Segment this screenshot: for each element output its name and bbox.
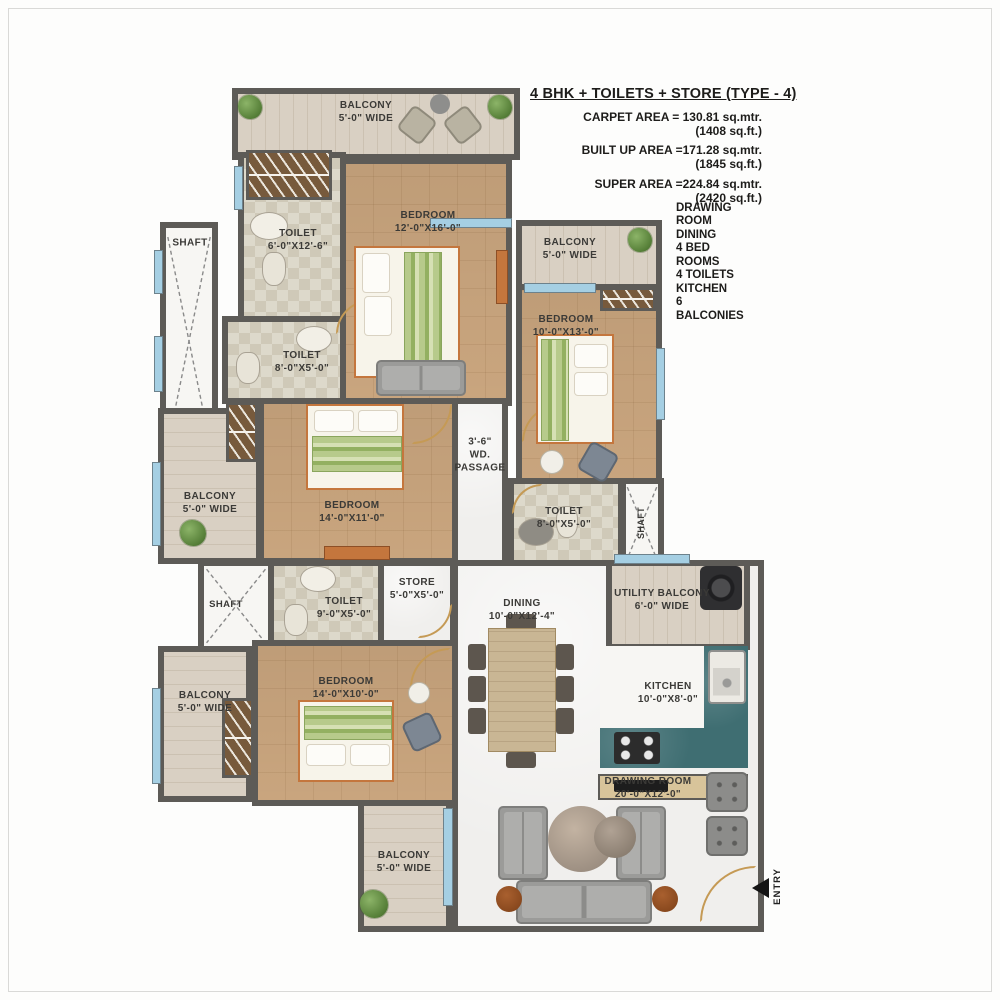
room-label-store: STORE 5'-0"X5'-0" <box>390 576 444 602</box>
room-label-balcony-right: BALCONY 5'-0" WIDE <box>543 236 597 262</box>
area-summary: CARPET AREA = 130.81 sq.mtr. (1408 sq.ft… <box>520 110 762 210</box>
dining-chair <box>506 752 536 768</box>
side-table <box>408 682 430 704</box>
feature-item: KITCHEN <box>676 283 744 296</box>
window <box>614 554 690 564</box>
bed <box>354 246 460 378</box>
feature-item: 4 BED ROOMS <box>676 242 744 269</box>
window <box>443 808 453 906</box>
feature-item: 4 TOILETS <box>676 269 744 282</box>
floor-plan-canvas: 4 BHK + TOILETS + STORE (TYPE - 4) CARPE… <box>0 0 1000 1000</box>
window <box>152 462 161 546</box>
entry-label: ENTRY <box>772 868 783 905</box>
washbasin-icon <box>300 566 336 592</box>
window <box>154 336 163 392</box>
sofa <box>376 360 466 396</box>
toilet-seat-icon <box>284 604 308 636</box>
plant-icon <box>628 228 652 252</box>
pillow <box>574 372 608 396</box>
plant-icon <box>238 95 262 119</box>
pouf <box>706 772 748 812</box>
pillow <box>574 344 608 368</box>
blanket <box>304 706 392 740</box>
window <box>524 283 596 293</box>
room-label-balcony-bottom-left: BALCONY 5'-0" WIDE <box>178 689 232 715</box>
room-label-bedroom-4: BEDROOM 14'-0"X10'-0" <box>313 675 379 701</box>
room-label-bedroom-3: BEDROOM 14'-0"X11'-0" <box>319 499 385 525</box>
dining-table <box>488 628 556 752</box>
feature-item: DINING <box>676 229 744 242</box>
dining-chair <box>556 708 574 734</box>
stove-icon <box>614 732 660 764</box>
room-label-bedroom-master: BEDROOM 12'-0"X16'-0" <box>395 209 461 235</box>
carpet-area: CARPET AREA = 130.81 sq.mtr. (1408 sq.ft… <box>520 110 762 138</box>
room-label-balcony-bottom: BALCONY 5'-0" WIDE <box>377 849 431 875</box>
feature-item: DRAWING ROOM <box>676 202 744 229</box>
blanket <box>404 252 442 374</box>
room-label-shaft-top-left: SHAFT <box>172 237 207 250</box>
bed <box>298 700 394 782</box>
sofa-cushion <box>504 812 542 874</box>
room-label-passage: 3'-6" WD. PASSAGE <box>455 436 506 475</box>
pouf <box>706 816 748 856</box>
room-passage <box>452 398 508 574</box>
plant-icon <box>180 520 206 546</box>
pillow <box>358 410 398 432</box>
dining-chair <box>556 644 574 670</box>
room-label-shaft-mid-left: SHAFT <box>209 599 243 611</box>
pillow <box>350 744 390 766</box>
sofa <box>516 880 652 924</box>
room-label-drawing-room: DRAWING ROOM 20'-0"X12'-0" <box>604 775 691 801</box>
balcony-table <box>430 94 450 114</box>
side-table <box>540 450 564 474</box>
room-label-dining: DINING 10'-0"X12'-4" <box>489 597 555 623</box>
dining-chair <box>468 676 486 702</box>
plant-icon <box>488 95 512 119</box>
pillow <box>306 744 346 766</box>
dining-chair <box>556 676 574 702</box>
dining-chair <box>468 644 486 670</box>
feature-item: 6 BALCONIES <box>676 296 744 323</box>
room-label-toilet-3: TOILET 8'-0"X5'-0" <box>537 505 591 531</box>
window <box>656 348 665 420</box>
room-label-toilet-master: TOILET 6'-0"X12'-6" <box>268 227 328 253</box>
dining-chair <box>468 708 486 734</box>
window <box>234 166 243 210</box>
room-label-utility-balcony: UTILITY BALCONY 6'-0" WIDE <box>614 587 710 613</box>
dresser <box>324 546 390 560</box>
wardrobe-icon <box>600 287 656 311</box>
blanket <box>312 436 402 472</box>
super-area: SUPER AREA =224.84 sq.mtr. (2420 sq.ft.) <box>520 177 762 205</box>
pillow <box>314 410 354 432</box>
plant-icon <box>360 890 388 918</box>
wardrobe-icon <box>246 150 332 200</box>
toilet-seat-icon <box>262 252 286 286</box>
pillow <box>362 253 390 293</box>
bed <box>536 334 614 444</box>
toilet-seat-icon <box>236 352 260 384</box>
bed <box>306 404 404 490</box>
feature-list: DRAWING ROOM DINING 4 BED ROOMS 4 TOILET… <box>676 202 744 323</box>
blanket <box>541 339 569 441</box>
room-label-bedroom-2: BEDROOM 10'-0"X13'-0" <box>533 313 599 339</box>
entry-arrow-icon <box>752 878 769 898</box>
room-label-kitchen: KITCHEN 10'-0"X8'-0" <box>638 680 698 706</box>
room-label-balcony-mid-left: BALCONY 5'-0" WIDE <box>183 490 237 516</box>
built-up-area: BUILT UP AREA =171.28 sq.mtr. (1845 sq.f… <box>520 143 762 171</box>
wardrobe-icon <box>226 402 258 462</box>
side-table <box>496 886 522 912</box>
sofa-cushion <box>522 886 646 918</box>
window <box>154 250 163 294</box>
armchair <box>498 806 548 880</box>
sink-icon <box>708 650 746 704</box>
room-label-toilet-4: TOILET 9'-0"X5'-0" <box>317 595 371 621</box>
sofa-cushion <box>382 366 460 390</box>
room-label-shaft-right: SHAFT <box>636 507 648 539</box>
side-table <box>652 886 678 912</box>
pillow <box>364 296 392 336</box>
coffee-table-small <box>594 816 636 858</box>
room-label-balcony-top: BALCONY 5'-0" WIDE <box>339 99 393 125</box>
room-label-toilet-2: TOILET 8'-0"X5'-0" <box>275 349 329 375</box>
dresser <box>496 250 508 304</box>
plan-title: 4 BHK + TOILETS + STORE (TYPE - 4) <box>530 86 780 102</box>
window <box>152 688 161 784</box>
